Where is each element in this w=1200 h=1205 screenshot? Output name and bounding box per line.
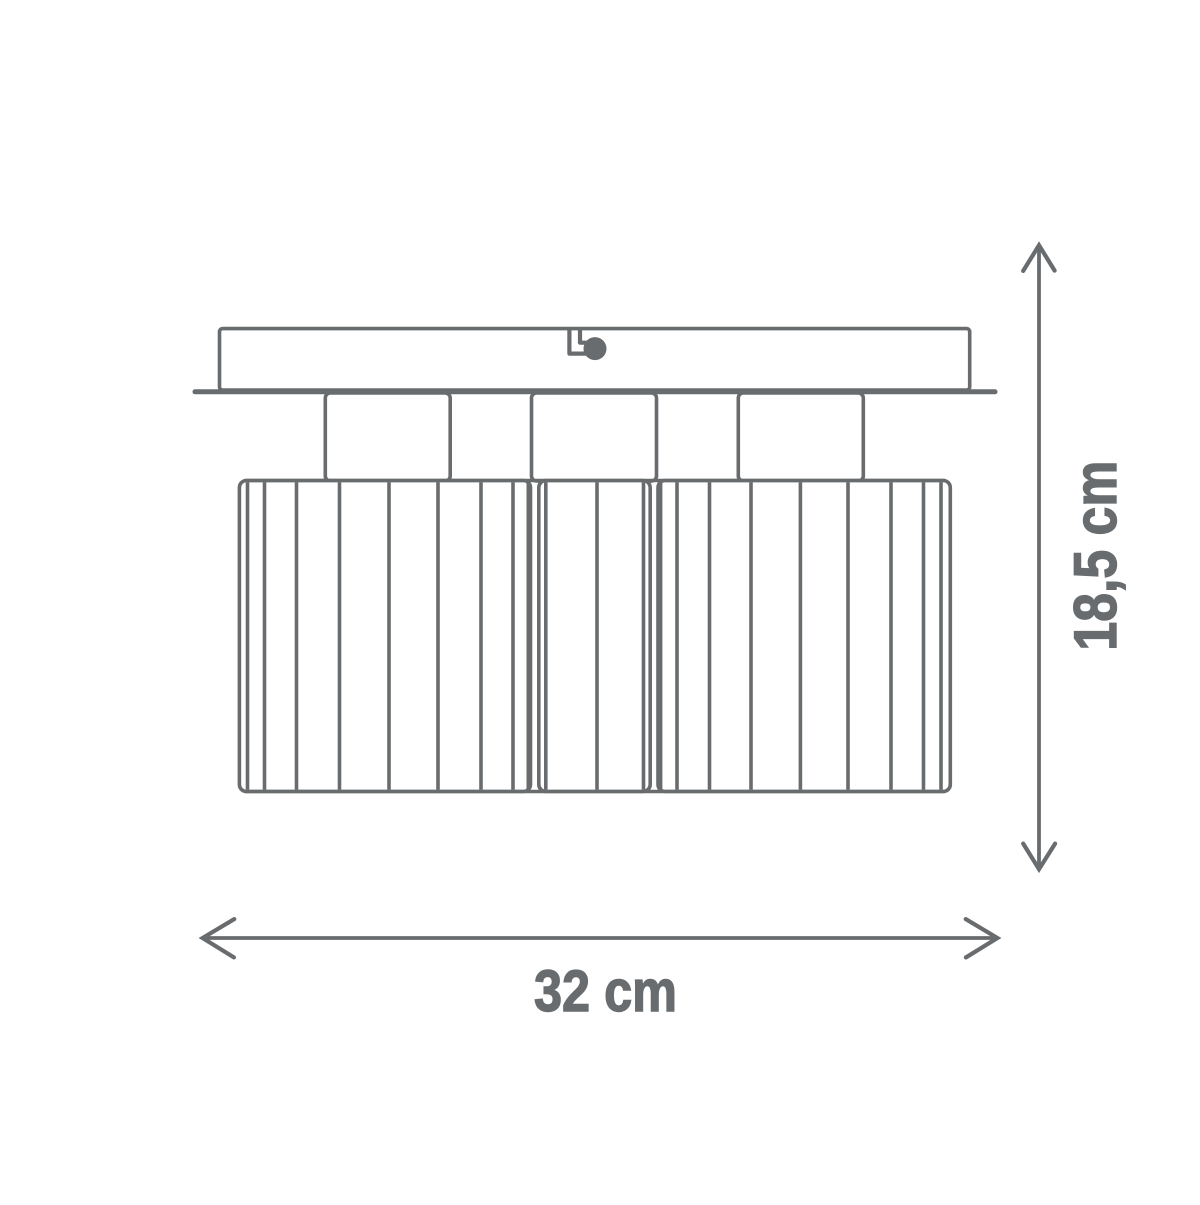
svg-text:18,5 cm: 18,5 cm: [1062, 461, 1129, 651]
svg-text:32 cm: 32 cm: [534, 959, 677, 1024]
